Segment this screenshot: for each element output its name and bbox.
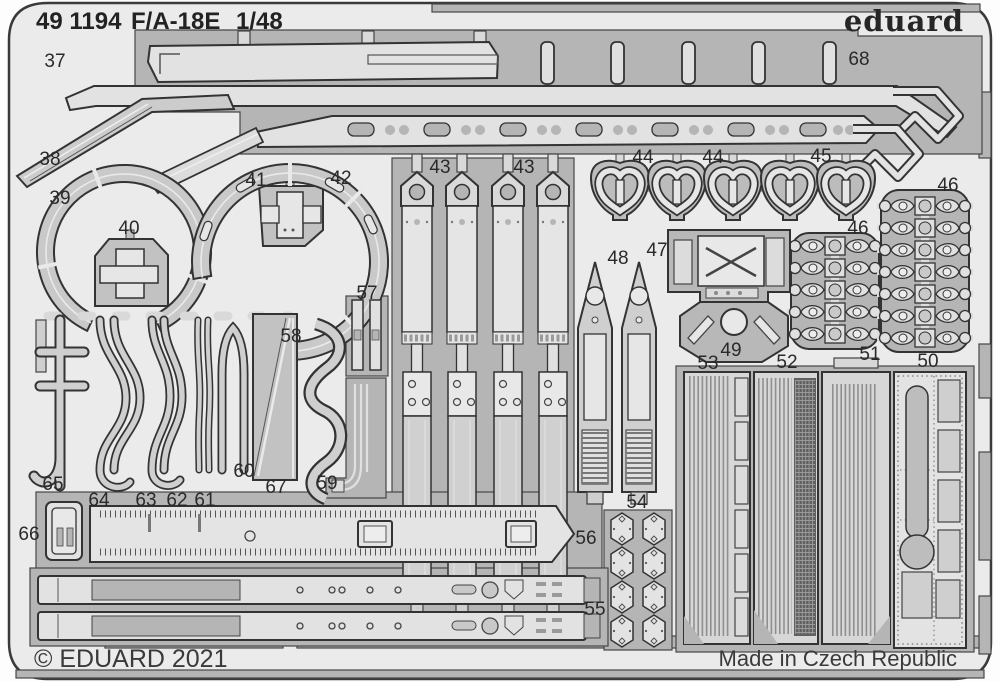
part-label-45: 45 <box>810 146 831 167</box>
part-label-44: 44 <box>632 147 654 168</box>
part-label-53: 53 <box>697 353 718 374</box>
part-41 <box>259 177 323 246</box>
panel-51 <box>822 358 890 644</box>
part-label-51: 51 <box>859 344 880 365</box>
part-47 <box>668 230 790 302</box>
part-61 <box>222 328 244 470</box>
part-label-62: 62 <box>166 490 187 511</box>
panel-50 <box>894 372 966 648</box>
part-label-43: 43 <box>513 157 534 178</box>
part-label-60: 60 <box>233 461 254 482</box>
part-label-58: 58 <box>280 326 301 347</box>
copyright-text: © EDUARD 2021 <box>34 645 228 673</box>
part-label-55: 55 <box>584 599 605 620</box>
kit-name: F/A-18E <box>131 8 220 35</box>
part-label-61: 61 <box>194 490 215 511</box>
made-in-text: Made in Czech Republic <box>719 646 957 671</box>
part-label-64: 64 <box>88 490 110 511</box>
fret-diagram: 49 1194 F/A-18E 1/48 eduard © EDUARD 202… <box>0 0 1000 682</box>
part-label-66: 66 <box>18 524 39 545</box>
part-label-50: 50 <box>917 351 938 372</box>
part-label-38: 38 <box>39 149 60 170</box>
part-label-68: 68 <box>848 49 869 70</box>
part-label-52: 52 <box>776 352 797 373</box>
brand-logo: eduard <box>844 4 964 38</box>
panel-52 <box>754 372 818 644</box>
part-label-49: 49 <box>720 340 741 361</box>
part-label-63: 63 <box>135 490 156 511</box>
part-label-41: 41 <box>245 170 266 191</box>
part-label-47: 47 <box>646 240 667 261</box>
part-label-42: 42 <box>330 168 351 189</box>
part-label-40: 40 <box>118 218 139 239</box>
part-label-67: 67 <box>265 477 286 498</box>
part-label-65: 65 <box>42 474 63 495</box>
kit-scale: 1/48 <box>236 8 283 35</box>
part-label-44: 44 <box>702 147 724 168</box>
part-label-57: 57 <box>356 283 377 304</box>
catalog-number: 49 1194 <box>36 8 122 35</box>
part-label-37: 37 <box>44 51 65 72</box>
panel-53 <box>684 372 750 644</box>
part-label-56: 56 <box>575 528 596 549</box>
part-66 <box>46 502 82 560</box>
part-label-54: 54 <box>626 492 648 513</box>
part-label-43: 43 <box>429 157 450 178</box>
etched-fret-sheet: 49 1194 F/A-18E 1/48 eduard © EDUARD 202… <box>0 0 1000 682</box>
part-label-46: 46 <box>937 175 958 196</box>
part-56-strip <box>90 506 574 562</box>
part-label-39: 39 <box>49 188 70 209</box>
part-label-59: 59 <box>316 473 337 494</box>
part-label-48: 48 <box>607 248 628 269</box>
part-label-46: 46 <box>847 218 868 239</box>
